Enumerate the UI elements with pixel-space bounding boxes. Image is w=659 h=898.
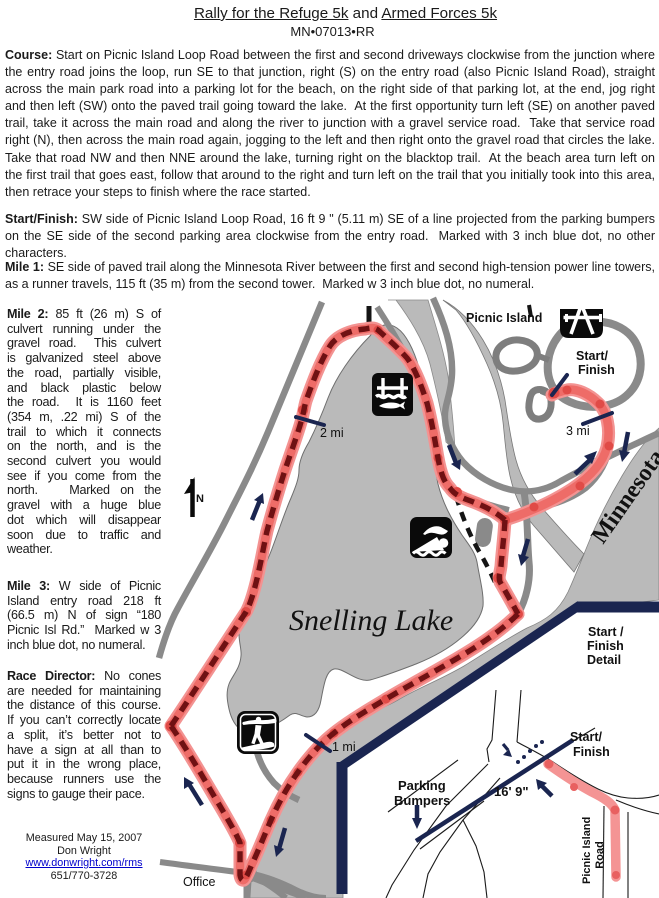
svg-text:Road: Road [594,841,606,869]
svg-text:Start/: Start/ [576,349,608,363]
svg-text:Start/: Start/ [570,730,602,744]
svg-text:Detail: Detail [587,653,621,667]
svg-text:Bumpers: Bumpers [394,793,450,808]
svg-text:Snelling Lake: Snelling Lake [289,604,453,637]
svg-text:Parking: Parking [398,778,446,793]
svg-text:3 mi: 3 mi [566,424,590,438]
svg-text:16' 9": 16' 9" [494,784,529,799]
svg-text:N: N [196,493,204,505]
svg-text:Office: Office [183,875,215,889]
svg-text:Picnic Island: Picnic Island [581,817,593,884]
svg-text:Finish: Finish [578,363,615,377]
svg-text:Start /: Start / [588,625,624,639]
svg-text:Finish: Finish [587,639,624,653]
svg-text:2 mi: 2 mi [320,426,344,440]
svg-text:1 mi: 1 mi [332,740,356,754]
svg-text:Picnic Island: Picnic Island [466,311,542,325]
svg-text:Finish: Finish [573,745,610,759]
